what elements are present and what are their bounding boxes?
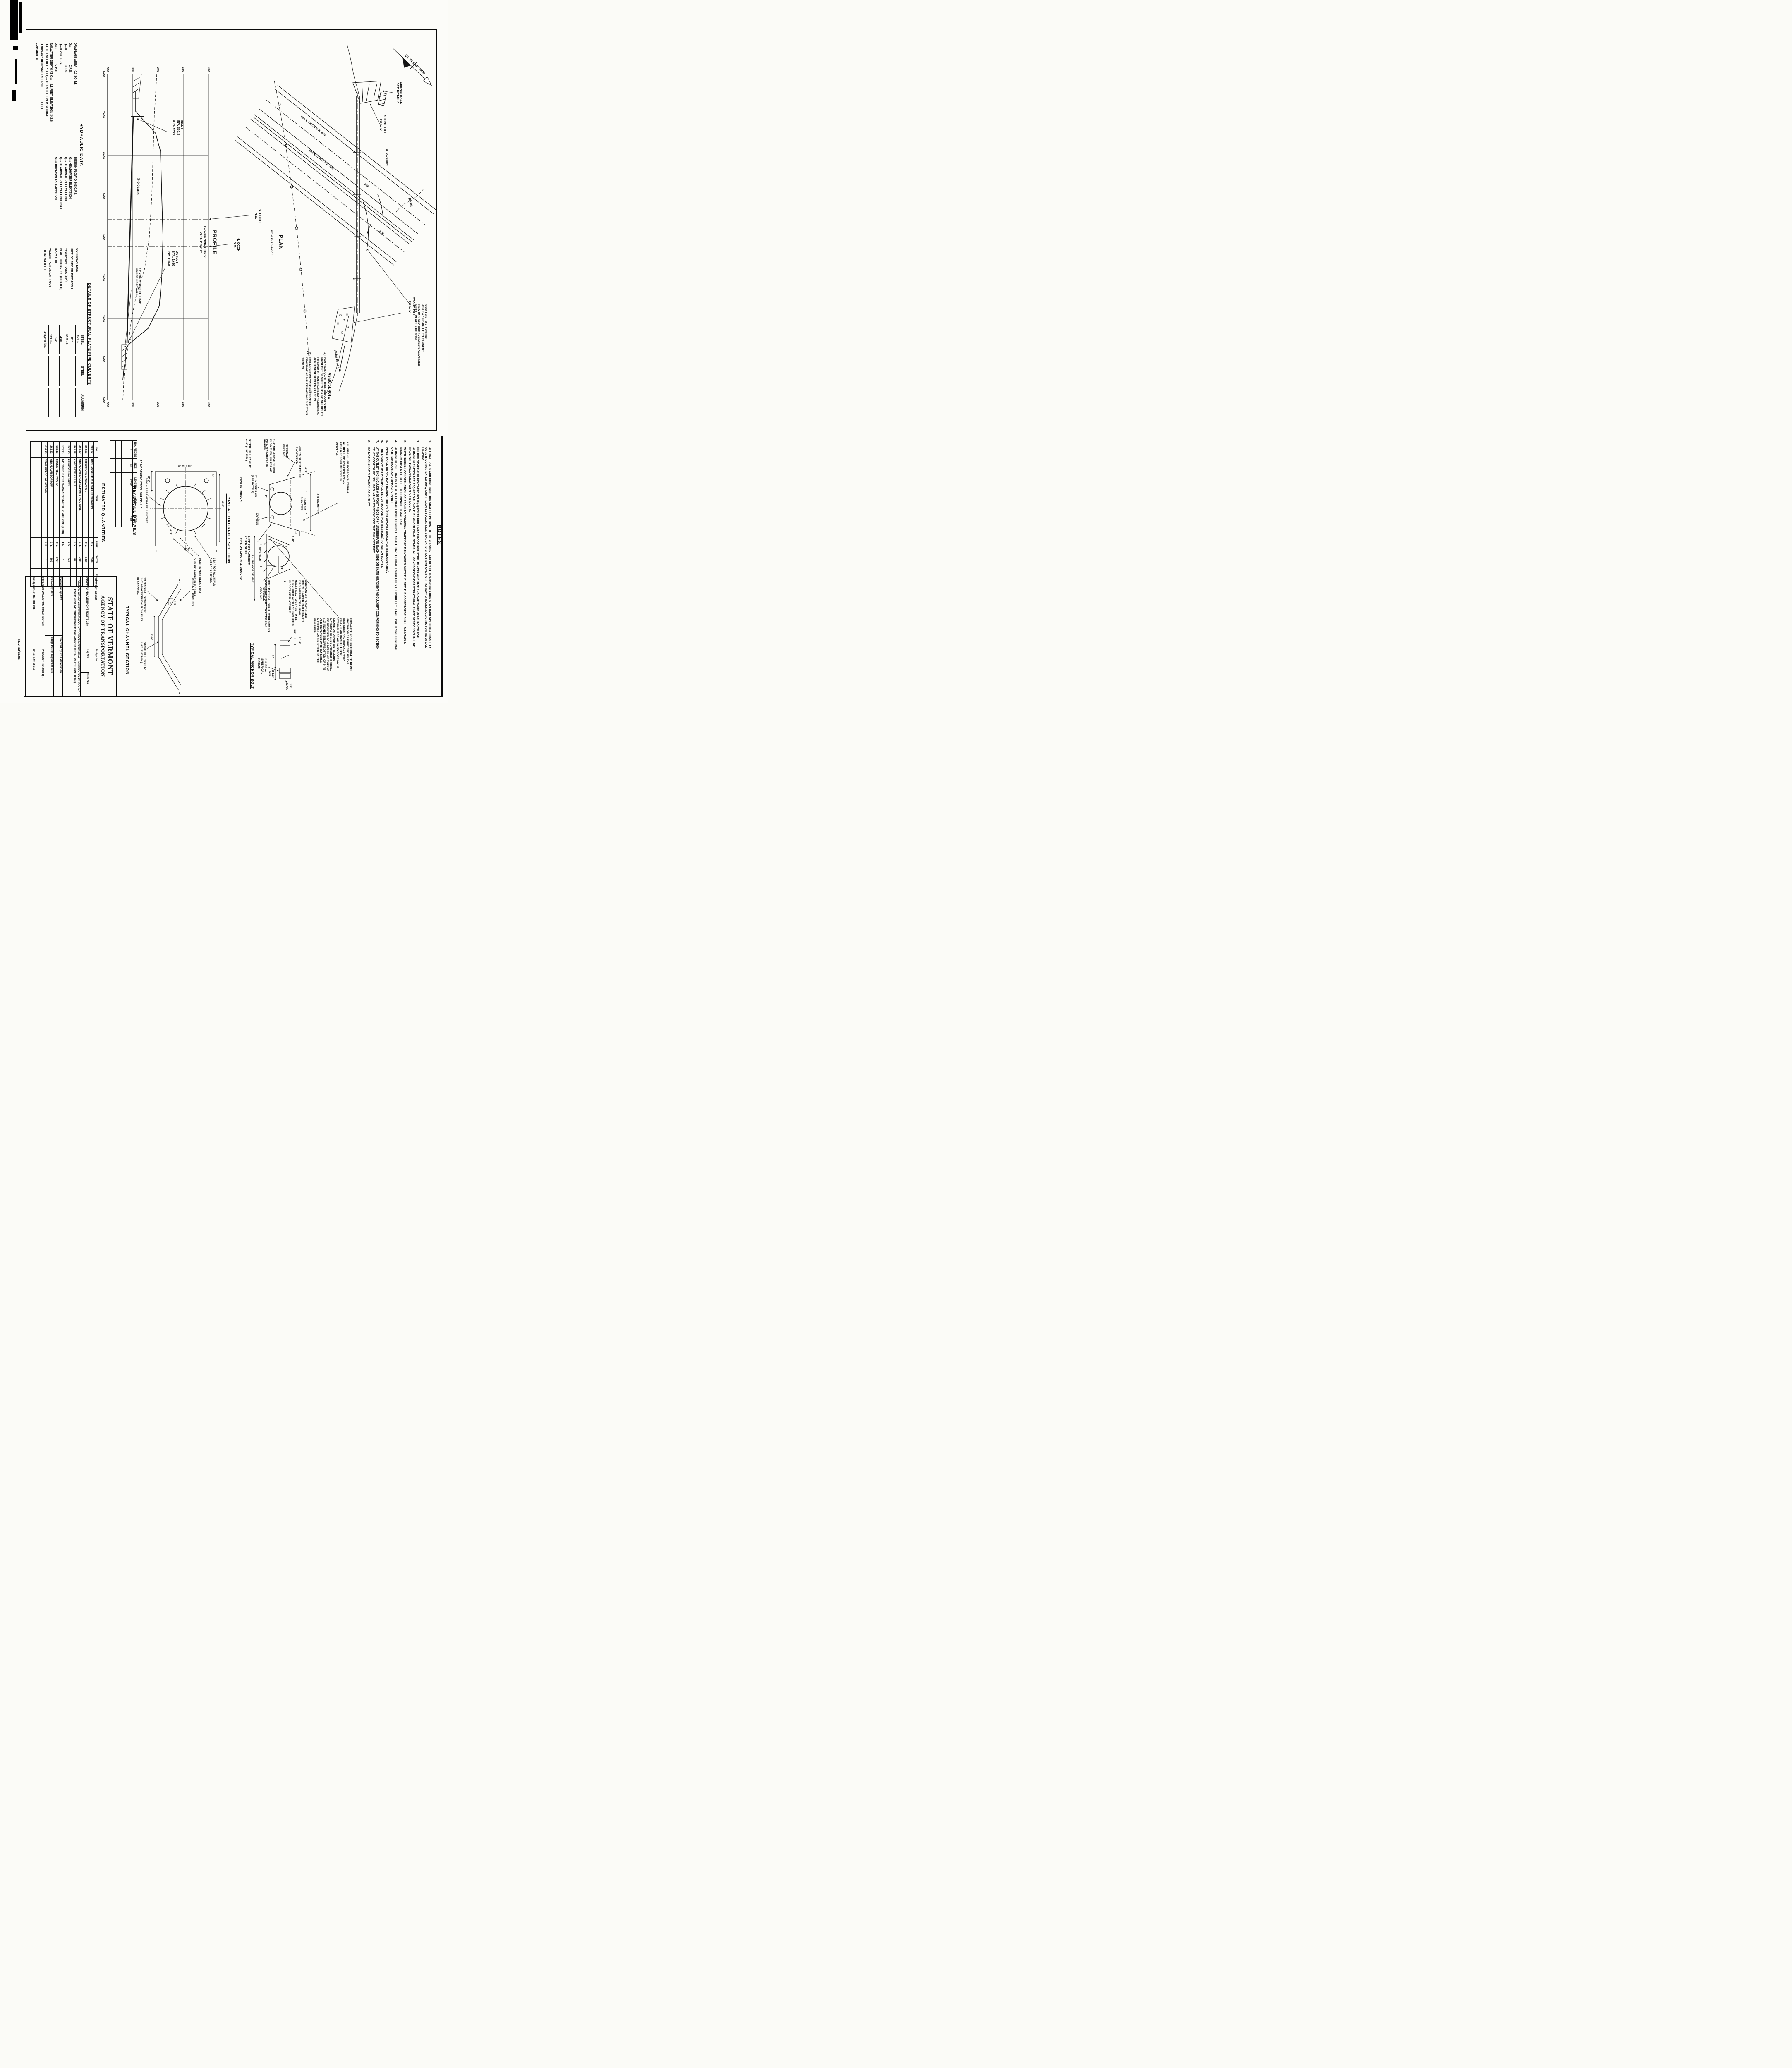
hydraulic-data-title: HYDRAULIC DATA bbox=[79, 43, 84, 247]
profile-embankment bbox=[123, 91, 163, 380]
note-item: 7.AT THE OUTLET END INCLUDE A 10 FOOT PI… bbox=[371, 440, 379, 654]
hydraulic-data-row: OUTLET VELOCITY AT Q₅₀ = 11.9 FEET PER S… bbox=[44, 43, 48, 247]
details-col-steel-2: STEEL bbox=[81, 356, 84, 386]
details-row: CORRUGATIONS 3x1 in. bbox=[75, 248, 81, 420]
anchor-nuts-label: 2 NUTS W/ SPHERICAL RADIUS bbox=[257, 658, 267, 685]
hydraulic-data-rows: DRAINAGE AREA = 0.3 SQ. MI. DESIGN FLOW … bbox=[35, 43, 77, 247]
note-item: 3.WHEN NORMAL CONSTRUCTION OR REGULAR RO… bbox=[399, 440, 406, 654]
reinforcing-row bbox=[115, 440, 121, 527]
backfill-span-dim: SPAN OR DIAMETER bbox=[300, 491, 307, 516]
surv-sta-cell: Surv. Sta. bbox=[81, 673, 89, 696]
details-row: SIZE OF PIPE OR PIPE ARCH 84" bbox=[70, 248, 75, 420]
reinforcing-title: REINFORCING STEEL SCHEDULE bbox=[138, 440, 142, 527]
agency-name-line2: AGENCY OF TRANSPORTATION bbox=[100, 577, 106, 696]
notes-title: NOTES bbox=[436, 518, 442, 551]
details-rows: CORRUGATIONS 3x1 in. SIZE OF PIPE OR PIP… bbox=[43, 248, 81, 420]
anchor-dim-3-4: 3/4" bbox=[292, 629, 296, 634]
profile-elev-label: 370 bbox=[156, 402, 160, 411]
profile-elev-label: 330 bbox=[106, 63, 110, 72]
log-sta-cell: Log Sta. bbox=[81, 648, 89, 673]
profile-elev-label: 350 bbox=[131, 402, 135, 411]
notes-list: 1.ALL MATERIALS AND CONSTRUCTION SHALL C… bbox=[365, 440, 431, 654]
headwall-clear-dim: 6" CLEAR bbox=[178, 465, 192, 468]
quantities-row: 511.15 84" CORRUGATED GALVANIZED METAL P… bbox=[59, 441, 65, 587]
bridge-no-cell: Bridge No. bbox=[89, 648, 98, 696]
hydraulic-data-row: COMMENTS: ____________________ bbox=[35, 43, 39, 247]
inlet-stone-pad bbox=[133, 74, 141, 98]
channel-to-original-label: TO ORIGINAL GROUND OR 1'-0" ABOVE DESIGN… bbox=[137, 577, 146, 631]
details-title: DETAILS OF STRUCTURAL PLATE PIPE CULVERT… bbox=[87, 248, 91, 420]
backfill-limits-label: LIMITS OF STRUCTURE EXCAVATION bbox=[295, 447, 301, 481]
channel-original-ground-label: ORIGINAL GROUND bbox=[191, 578, 194, 606]
plan-station-tick-label: 5 bbox=[352, 192, 355, 197]
details-row: TOTAL WEIGHT 142,945 lbs. bbox=[43, 248, 48, 420]
designed-by-cell: Designed by JRC bbox=[54, 577, 63, 635]
details-col-steel-1: STEEL bbox=[81, 325, 84, 354]
note-item: 2.UNLESS OTHERWISE INDICATED FOUR (4) BO… bbox=[407, 440, 419, 654]
stone-fill-inlet-label: STONE FILL TYPE IV bbox=[379, 112, 387, 136]
quantities-row: 203.32 GRANULAR BORROW C.Y. 800 bbox=[48, 441, 53, 587]
profile-elev-label: 370 bbox=[156, 63, 160, 72]
hydraulic-data-row: ORDINARY HIGHWATER DEPTH ________ FEET bbox=[39, 43, 44, 247]
anchor-dim-2-1-2: 2 1/2" MIN. bbox=[268, 668, 275, 681]
note-item: 5.PIPES SHALL BE FACTORY ELONGATED 5% (P… bbox=[385, 440, 389, 654]
profile-cl-sb-label: ℄ CCCH S.B. bbox=[232, 235, 240, 255]
hydraulic-data-row: Q₂₅ = ________ C.F.S. Q₂₅ HEADWATER ELEV… bbox=[63, 43, 67, 247]
details-row: WEIGHT PER LINEAR FOOT 253 lbs. bbox=[48, 248, 54, 420]
profile-title: PROFILE SCALES: HOR. 1"=50'-0" VERT. 1"=… bbox=[199, 218, 221, 266]
drawn-by-cell: Drawn by JFD bbox=[45, 577, 54, 635]
profile-station-label: 6+00 bbox=[102, 149, 105, 162]
project-cell: PROJECT WILLISTON-COLCHESTER bbox=[36, 577, 45, 648]
granular-borrow-note: ALL GRANULAR BORROW MATERIAL WITHIN 4' O… bbox=[335, 442, 349, 505]
details-row: BOLT SIZE 3/4" bbox=[54, 248, 59, 420]
highway-cell: HIGHWAY NO. VERMONT ROUTE 289 bbox=[81, 577, 89, 648]
as-built-title: AS BUILT NOTE bbox=[327, 352, 331, 419]
anchor-dim-1-1-4: 1 1/4" bbox=[297, 637, 301, 644]
backfill-alum-steel-label: 1 3/4" FOR ALUMINUM 2" FOR STEEL bbox=[244, 536, 251, 574]
reinforcing-header-row: NO. PIECES SIZE LENGTH MARK TYPE bbox=[133, 440, 137, 527]
quantities-rows: 203.27 UNCLASSIFIED CHANNEL EXCAVATION C… bbox=[30, 441, 94, 587]
hydraulic-data-row: Q₁₀₀ = _______ C.F.S. Q₁₀₀ HEADWATER ELE… bbox=[53, 43, 58, 247]
as-built-item: 2.)FOR ADDITIONAL INFORMATION SEE DRAINA… bbox=[301, 352, 311, 419]
plan-pipe bbox=[354, 93, 361, 321]
scanned-drawing-sheet: VT. PLANE GRID DEBRIS RACK SEE DETAILS S… bbox=[0, 0, 448, 703]
note-item: 6.THE ENDS OF THE PIPE SHALL BE CUT SQUA… bbox=[380, 440, 384, 654]
project-description-cell: STATION 605+93 CHITTENDEN COUNTY CIRCUMF… bbox=[63, 577, 80, 696]
profile-elev-label: 390 bbox=[182, 63, 185, 72]
hydraulic-data-row: TAILWATER DEPTH AT Q₅₀ = 3.1 FEET, ELEVA… bbox=[49, 43, 53, 247]
outlet-stone-pad bbox=[122, 345, 127, 369]
profile-station-label: 1+00 bbox=[102, 353, 105, 365]
reinforcing-schedule: REINFORCING STEEL SCHEDULE NO. PIECES SI… bbox=[110, 440, 142, 527]
headwall-1-6-dim: 1'-6" bbox=[169, 529, 172, 536]
anchor-one-row-note: ONE ROW 3/4" GALVANIZED BOLTS, SPACED IN… bbox=[287, 580, 307, 636]
profile-elev-label: 350 bbox=[131, 63, 135, 72]
channel-slope-label: 1.5 1 bbox=[170, 599, 176, 607]
checked-by-cell: Checked by RCA date 5/6/87 bbox=[54, 636, 63, 696]
project-no-cell: PROJECT NO. 033-1( ) bbox=[36, 648, 45, 696]
rev-note: REV. 12/11/85 bbox=[17, 639, 21, 660]
headwall-leaders bbox=[148, 495, 210, 558]
backfill-1-6-dim: 1'-6" bbox=[304, 467, 307, 474]
details-row: WATERWAY AREA (S.F.) 38.5 s.f. bbox=[65, 248, 70, 420]
backfill-underdrain-label: 6" UNDERDRAIN (SEE NOTE 7) bbox=[250, 475, 257, 505]
backfill-3in-dim: 3" bbox=[264, 495, 267, 498]
profile-leaders bbox=[125, 119, 252, 347]
debris-rack-label: DEBRIS RACK SEE DETAILS bbox=[395, 79, 403, 107]
profile-station-label: 7+00 bbox=[102, 108, 105, 121]
pipe-note-label: CCCH S.B. 605+93=3+80 ASKEW 128°-00' LT.… bbox=[413, 304, 427, 379]
channel-section bbox=[147, 576, 190, 698]
quantities-row: 204.25 STRUCTURE EXCAVATION C.Y. 1499 bbox=[82, 441, 88, 587]
profile-grid bbox=[108, 74, 208, 400]
backfill-pipe-on-ground-caption: PIPE ON ORIGINAL GROUND bbox=[239, 538, 242, 580]
drawing-landscape-content: VT. PLANE GRID DEBRIS RACK SEE DETAILS S… bbox=[0, 0, 448, 703]
backfill-4x-diameter-dim: 4 X DIAMETER bbox=[316, 479, 319, 529]
supervisor-cell: Bridge Design Supervisor date bbox=[45, 636, 54, 696]
plan-slope-label: S=0.0085% bbox=[386, 149, 389, 166]
profile-stone-pad-label: 10' x 36' STONE FILL PAD UNDER HEADWALL bbox=[134, 268, 141, 314]
profile-station-label: 2+00 bbox=[102, 312, 105, 325]
note-item: 4.ALUMINUM PIPE THAT IS TO BE IN CONTACT… bbox=[390, 440, 398, 654]
quantities-header-row: NO. ITEM UNIT TOTAL FINAL bbox=[94, 441, 98, 587]
town-cell: TOWN OF ESSEX bbox=[89, 577, 98, 648]
quantities-row: 613.13 STONE FILL, TYPE IV C.Y. 1707 bbox=[53, 441, 59, 587]
backfill-stone-fill-label: STONE FILL, TYPE IV 4'-0" (2'-0" MIN.) bbox=[244, 439, 251, 477]
profile-station-label: 3+00 bbox=[102, 271, 105, 284]
headwall-inlet-invert-label: INLET INVERT ELEV. 350.3 bbox=[198, 558, 201, 593]
headwall-bars-label: 3-NO.6 BARS AT INLET & OUTLET bbox=[144, 467, 148, 534]
backfill-2-1-slope: 2:1 bbox=[283, 581, 286, 585]
headwall-6-dim: 6" bbox=[211, 474, 214, 477]
backfill-min-above-label: 2'-0" MIN. ABOVE DESIGN FLOW ELEV., OR T… bbox=[262, 439, 275, 484]
profile-outlet-label: OUTLET STA. 1+30 INV. 345.5 bbox=[168, 251, 179, 277]
plan-station-tick-label: 3 bbox=[352, 276, 355, 281]
agency-name-line1: STATE OF VERMONT bbox=[106, 577, 115, 696]
headwall-alum-label: 1 3/4" FOR ALUMINUM AND 2" FOR STEEL bbox=[209, 558, 216, 597]
profile-elev-label: 390 bbox=[182, 402, 185, 411]
hydraulic-data-row: Q₅₀ = 263 C.F.S. Q₅₀ HEADWATER ELEVATION… bbox=[58, 43, 63, 247]
plan-title: PLAN SCALE: 1"=50'-0" bbox=[269, 223, 287, 262]
backfill-half-span-dim: 1/2 x SPAN bbox=[258, 547, 261, 561]
backfill-cap-end-label: CAP END bbox=[255, 513, 259, 525]
bridge-sheet-cell: Bridge Sheet No. BR 101 bbox=[27, 577, 36, 648]
quantities-table: NO. ITEM UNIT TOTAL FINAL 203.27 UNCLASS… bbox=[30, 441, 98, 587]
quantities-row: 204.30 GRANULAR BACKFILL FOR STRUCTURE C… bbox=[77, 441, 82, 587]
profile-station-label: 8+00 bbox=[102, 68, 105, 80]
plan-station-tick-label: 4 bbox=[352, 234, 355, 239]
details-col-aluminum: ALUMINUM bbox=[81, 388, 84, 417]
reinforcing-rows: 6 #6 27'-0" STR. bbox=[110, 440, 133, 527]
anchor-material-note: BOLT MATERIAL SHALL CONFORM TO ASTM-A307… bbox=[264, 580, 270, 642]
channel-stone-fill-label: STONE FILL, TYPE IV 4'-0" (2'-0" MIN.) bbox=[140, 642, 146, 687]
details-row: PLATE THICKNESS (COATED) .168" bbox=[59, 248, 65, 420]
anchor-title: TYPICAL ANCHOR BOLT bbox=[250, 637, 254, 695]
reinforcing-row: 6 #6 27'-0" STR. bbox=[127, 440, 133, 527]
highway-lines bbox=[235, 85, 437, 265]
headwall-detail bbox=[150, 467, 221, 551]
backfill-2-1-slope: 2:1 bbox=[293, 530, 297, 534]
profile-elev-label: 330 bbox=[106, 402, 110, 411]
plan-title-text: PLAN bbox=[278, 235, 284, 250]
profile-slope-label: S=0.0085% bbox=[136, 178, 140, 195]
details-header-row: STEEL STEEL ALUMINUM bbox=[81, 248, 86, 420]
anchor-dim-1-8: 1/8" MAX. bbox=[285, 683, 292, 694]
as-built-item: 1.)FOR FINAL QUANTITIES SEE COMPUTER PRI… bbox=[312, 352, 326, 419]
quantities-row: 203.27 UNCLASSIFIED CHANNEL EXCAVATION C… bbox=[88, 441, 94, 587]
backfill-trench bbox=[269, 446, 315, 536]
profile-scales-text: SCALES: HOR. 1"=50'-0" VERT. 1"=10'-0" bbox=[199, 226, 206, 259]
profile-station-label: 4+00 bbox=[102, 231, 105, 243]
quantities-row bbox=[36, 441, 42, 587]
headwall-8-6-dim: 8'-6" bbox=[220, 501, 224, 507]
profile-elev-label: 410 bbox=[207, 402, 211, 411]
quantities-row bbox=[30, 441, 36, 587]
note-item: 1.ALL MATERIALS AND CONSTRUCTION SHALL C… bbox=[420, 440, 431, 654]
quantities-row: 501.25 CONCRETE, CLASS B C.Y. 53 bbox=[71, 441, 77, 587]
backfill-4ft-dim: 4' bbox=[280, 567, 283, 570]
outlet-stone-fill bbox=[332, 307, 355, 342]
reinforcing-row bbox=[121, 440, 127, 527]
note-item: 8.DO NOT CHANGE ELEVATION OF OUTLET. bbox=[367, 440, 370, 654]
profile-elev-label: 410 bbox=[207, 63, 211, 72]
plan-station-tick-label: 6 bbox=[352, 150, 355, 155]
quantities-row: 614.10 TEMP. RELOC. OF STREAM L.S. 1 bbox=[42, 441, 48, 587]
sheet-number-cell: Sheet 140 of 310 bbox=[27, 648, 36, 696]
backfill-title: TYPICAL BACKFILL SECTION bbox=[226, 483, 231, 574]
backfill-1-0-dim: 1'-0" bbox=[291, 536, 294, 542]
backfill-pipe-in-trench-caption: PIPE IN TRENCH bbox=[239, 477, 242, 502]
backfill-3span-dim: 3 x SPAN OR 25' MAX. bbox=[250, 538, 254, 601]
title-block: STATE OF VERMONT AGENCY OF TRANSPORTATIO… bbox=[25, 576, 117, 697]
plan-station-tick-label: 2 bbox=[352, 318, 355, 323]
hydraulic-data-row: Q₁₀ = ________ C.F.S. Q₁₀ HEADWATER ELEV… bbox=[68, 43, 72, 247]
profile-inlet-label: INLET INV. 350.3 STA. 6+95 bbox=[172, 120, 184, 149]
as-built-note: AS BUILT NOTE 1.)FOR FINAL QUANTITIES SE… bbox=[299, 352, 331, 419]
profile-pipe-invert bbox=[127, 117, 133, 343]
profile-station-label: 0+00 bbox=[102, 394, 105, 406]
quantities-title: ESTIMATED QUANTITIES bbox=[100, 463, 105, 562]
headwall-4-6-dim: 4'-6" bbox=[184, 548, 191, 551]
anchor-dim-6: 6" bbox=[271, 655, 274, 658]
hydraulic-data-block: HYDRAULIC DATA DRAINAGE AREA = 0.3 SQ. M… bbox=[35, 43, 84, 247]
brook-upstream-line bbox=[347, 45, 359, 94]
backfill-original-ground-label: ORIGINAL GROUND bbox=[282, 444, 288, 462]
plan-scale-text: SCALE: 1"=50'-0" bbox=[270, 230, 273, 255]
channel-title: TYPICAL CHANNEL SECTION bbox=[124, 591, 129, 690]
profile-title-text: PROFILE bbox=[212, 230, 218, 254]
channel-4-0-dim: 4'-0" bbox=[149, 627, 153, 647]
quantities-row: 507.15 REINFORCING STEEL LB. 243 bbox=[65, 441, 71, 587]
structural-plate-details-block: DETAILS OF STRUCTURAL PLATE PIPE CULVERT… bbox=[43, 248, 91, 420]
reinforcing-row bbox=[110, 440, 115, 527]
as-built-items: 1.)FOR FINAL QUANTITIES SEE COMPUTER PRI… bbox=[301, 352, 326, 419]
profile-cl-nb-label: ℄ CCCH N.B. bbox=[254, 206, 262, 226]
excavate-note: EXCAVATE POOR MATERIAL TO DEPTH SHOWN OR… bbox=[312, 618, 352, 672]
hydraulic-data-row: DRAINAGE AREA = 0.3 SQ. MI. DESIGN FLOW … bbox=[72, 43, 77, 247]
profile-station-label: 5+00 bbox=[102, 190, 105, 202]
